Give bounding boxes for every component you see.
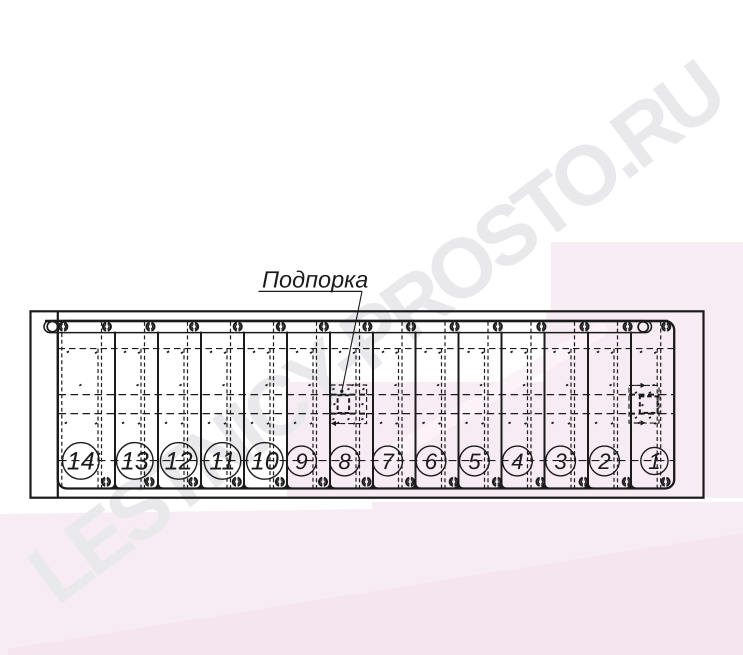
svg-text:6: 6 bbox=[425, 449, 438, 474]
svg-text:2: 2 bbox=[597, 449, 611, 474]
svg-text:10: 10 bbox=[251, 448, 279, 476]
svg-text:7: 7 bbox=[381, 449, 395, 474]
svg-text:5: 5 bbox=[468, 449, 481, 474]
svg-text:1: 1 bbox=[648, 449, 660, 474]
svg-text:14: 14 bbox=[67, 448, 95, 476]
svg-text:8: 8 bbox=[338, 449, 351, 474]
svg-text:3: 3 bbox=[554, 449, 567, 474]
svg-text:11: 11 bbox=[209, 448, 235, 476]
svg-text:13: 13 bbox=[121, 448, 149, 476]
svg-text:9: 9 bbox=[295, 449, 307, 474]
svg-text:4: 4 bbox=[511, 449, 523, 474]
svg-text:Подпорка: Подпорка bbox=[262, 267, 368, 293]
svg-text:12: 12 bbox=[165, 448, 193, 476]
